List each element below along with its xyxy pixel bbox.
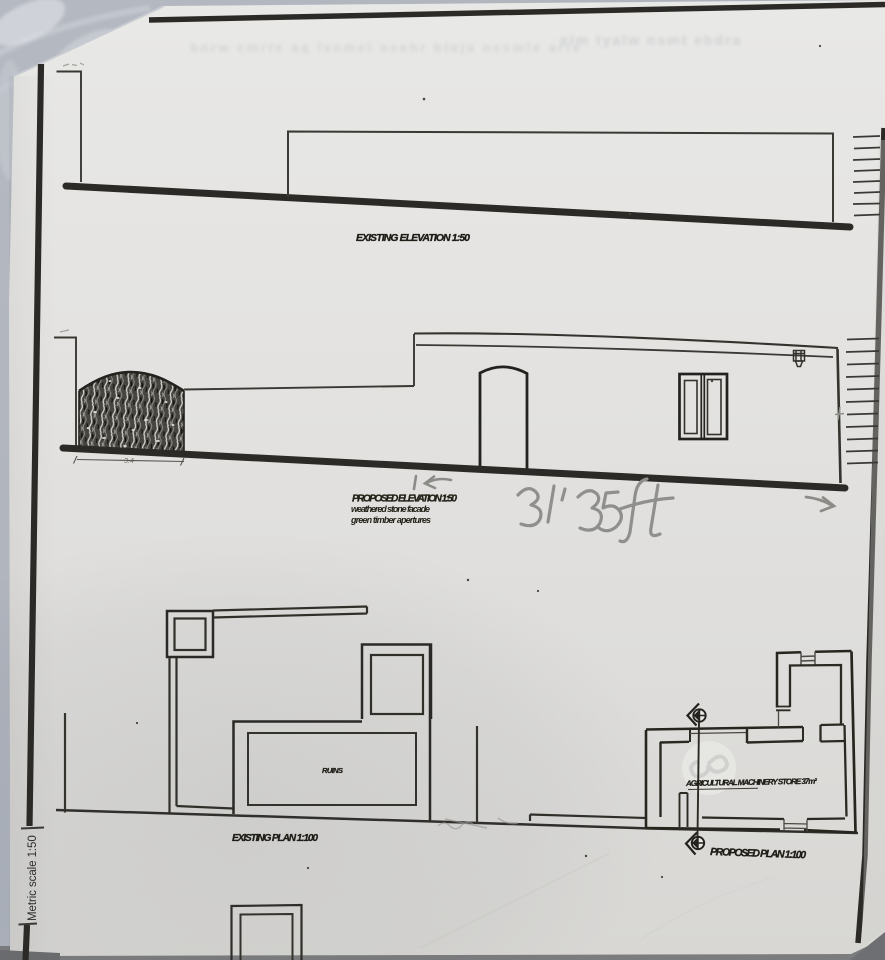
svg-text:Metric scale 1:50: Metric scale 1:50 xyxy=(27,835,39,921)
svg-text:weathered stone facade: weathered stone facade xyxy=(351,504,430,514)
svg-text:elm tyalw nsmt ebdra: elm tyalw nsmt ebdra xyxy=(560,32,742,48)
svg-text:PROPOSED ELEVATION 1:50: PROPOSED ELEVATION 1:50 xyxy=(352,494,457,505)
svg-text:3.4: 3.4 xyxy=(124,458,134,465)
svg-text:bnrw cmrte aq lvnmel osehr bte: bnrw cmrte aq lvnmel osehr bteja ncsmle … xyxy=(190,40,583,55)
svg-text:EXISTING ELEVATION 1:50: EXISTING ELEVATION 1:50 xyxy=(356,233,470,244)
svg-text:EXISTING PLAN 1:100: EXISTING PLAN 1:100 xyxy=(232,833,318,844)
svg-text:green timber apertures: green timber apertures xyxy=(350,515,431,525)
svg-text:RUINS: RUINS xyxy=(322,766,343,775)
